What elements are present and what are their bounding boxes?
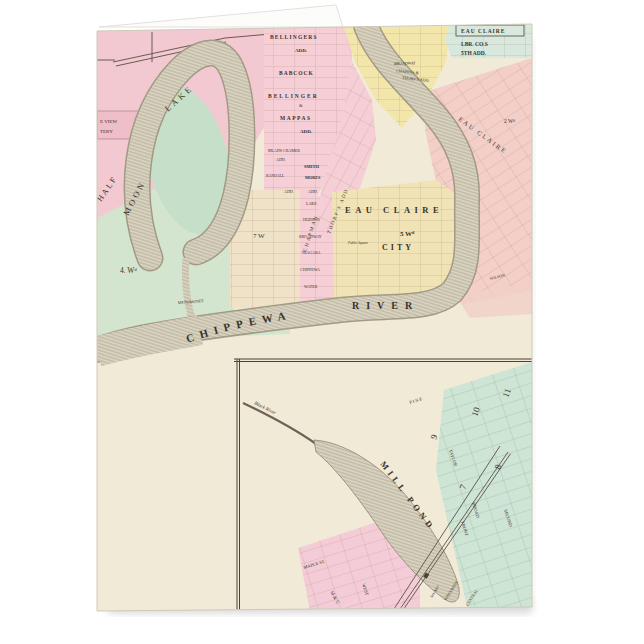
label-st-niagara: NIAGARA (302, 250, 321, 255)
card-front: E VIEW TERY (95, 22, 532, 614)
label-st-hudson: HUDSON (303, 217, 320, 222)
label-randall: RANDALL (266, 174, 285, 178)
label-bellingers: BELLINGERS (270, 34, 318, 40)
label-mores: MORES (305, 175, 321, 180)
label-st-chippewa: CHIPPEWA (300, 267, 320, 272)
label-st-broadway: BROADWAY (299, 234, 322, 239)
label-ward7: 7 W (253, 232, 265, 240)
label-city-eau-claire: EAU CLAIRE (345, 205, 443, 215)
label-babcock: BABCOCK (279, 70, 314, 76)
card-back-flap (99, 5, 343, 27)
label-chippewa-river-word2: RIVER (352, 300, 419, 311)
label-ec-lbr-2: 5TH ADD. (461, 50, 487, 56)
label-st-water: WATER (304, 284, 318, 289)
label-broadway-top: BROADWAY (394, 60, 416, 66)
label-cramer-add: ADD. (276, 157, 286, 162)
greeting-card-map-image: E VIEW TERY (0, 0, 644, 644)
label-ec-lbr-1: LBR. CO.S (461, 41, 488, 47)
label-cemetery-2: TERY (100, 129, 113, 134)
label-bellinger: BELLINGER (268, 93, 319, 99)
label-mappas-add: ADD. (300, 129, 313, 134)
label-ampersand: & (299, 103, 303, 108)
label-city: CITY (382, 243, 414, 252)
label-mappas: MAPPAS (280, 115, 312, 121)
label-ward5: 5 Wᵈ (400, 230, 415, 238)
label-smith: SMITH (304, 164, 320, 169)
label-st-lake: LAKE (306, 201, 317, 206)
label-mores-add1: ADD. (284, 189, 294, 194)
label-bellingers-add: ADD. (295, 48, 308, 53)
label-ward4: 4. Wᵈ (120, 266, 137, 275)
label-ward2: 2 Wᵈ (504, 118, 515, 124)
label-mlads-cramer: MLADS CRAMER (268, 148, 300, 153)
card-preview[interactable]: E VIEW TERY (0, 0, 644, 644)
label-mores-add2: ADD. (308, 189, 318, 194)
label-cemetery-1: E VIEW (100, 119, 118, 124)
label-public-square: Public Square (347, 241, 368, 245)
label-ec-lbr-title: EAU CLAIRE (461, 28, 505, 34)
